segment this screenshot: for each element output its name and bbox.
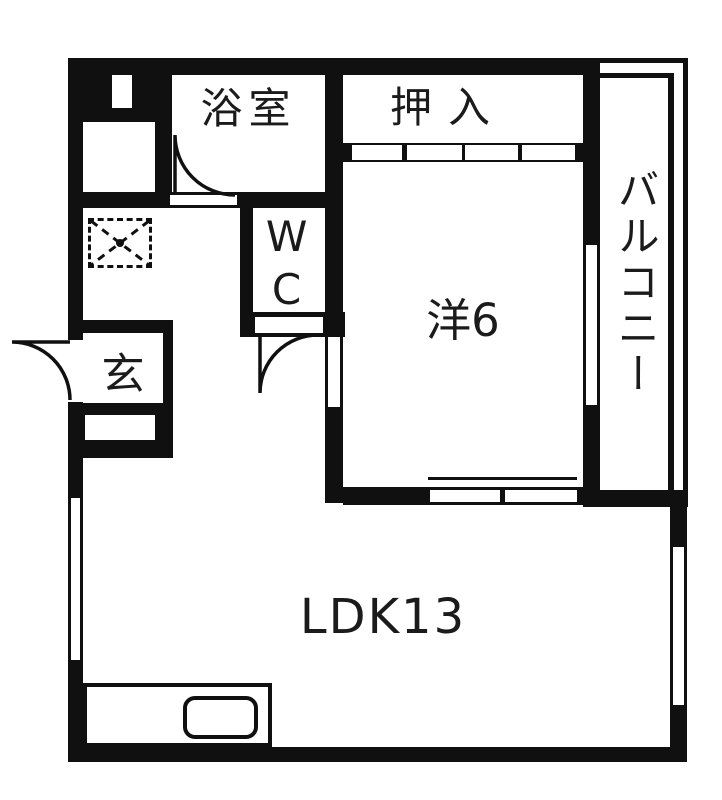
window-right-outer-line <box>684 547 687 705</box>
entrance-label: 玄 <box>83 353 163 398</box>
balcony-rail-outer-right <box>683 58 688 507</box>
balcony-rail-outer-top <box>595 58 688 63</box>
wall-bottom <box>68 747 687 762</box>
wall-balcony-side-upper <box>583 58 600 245</box>
wall-center-column-lower <box>325 407 343 503</box>
alcove-notch <box>112 75 132 108</box>
balcony-label: バルコニー <box>613 168 657 398</box>
closet-sliding-panel <box>352 145 402 160</box>
floor-plan: 浴室 押入 WC 洋6 バルコニー 玄 LDK13 <box>0 0 722 800</box>
ldk-label: LDK13 <box>83 592 683 642</box>
balcony-rail-inner-top <box>600 73 674 78</box>
balcony-rail-inner-right <box>668 73 674 493</box>
western-room-label: 洋6 <box>343 297 583 344</box>
wc-door-threshold <box>255 317 323 333</box>
equipment-dashed-box <box>88 218 152 268</box>
alcove-area <box>83 122 155 192</box>
window-left-outer-line <box>68 498 71 660</box>
wall-genkan-right <box>163 333 173 403</box>
wall-right-upper <box>670 507 687 547</box>
western-room-sliding-panel <box>505 490 577 502</box>
closet-sliding-panel <box>465 145 518 160</box>
wall-genkan-top <box>68 320 173 333</box>
genkan-step <box>85 415 155 440</box>
wc-label: WC <box>264 212 308 318</box>
western-room-sliding-panel <box>430 490 500 502</box>
wall-right-lower <box>670 705 687 762</box>
closet-sliding-panel <box>522 145 575 160</box>
closet-label: 押入 <box>333 86 563 130</box>
closet-sliding-panel <box>407 145 462 160</box>
western-room-door-track-line <box>428 477 577 480</box>
balcony-window <box>583 245 600 405</box>
bathroom-door-threshold <box>170 195 237 205</box>
kitchen-sink <box>183 696 258 739</box>
bathroom-label: 浴室 <box>172 87 325 131</box>
